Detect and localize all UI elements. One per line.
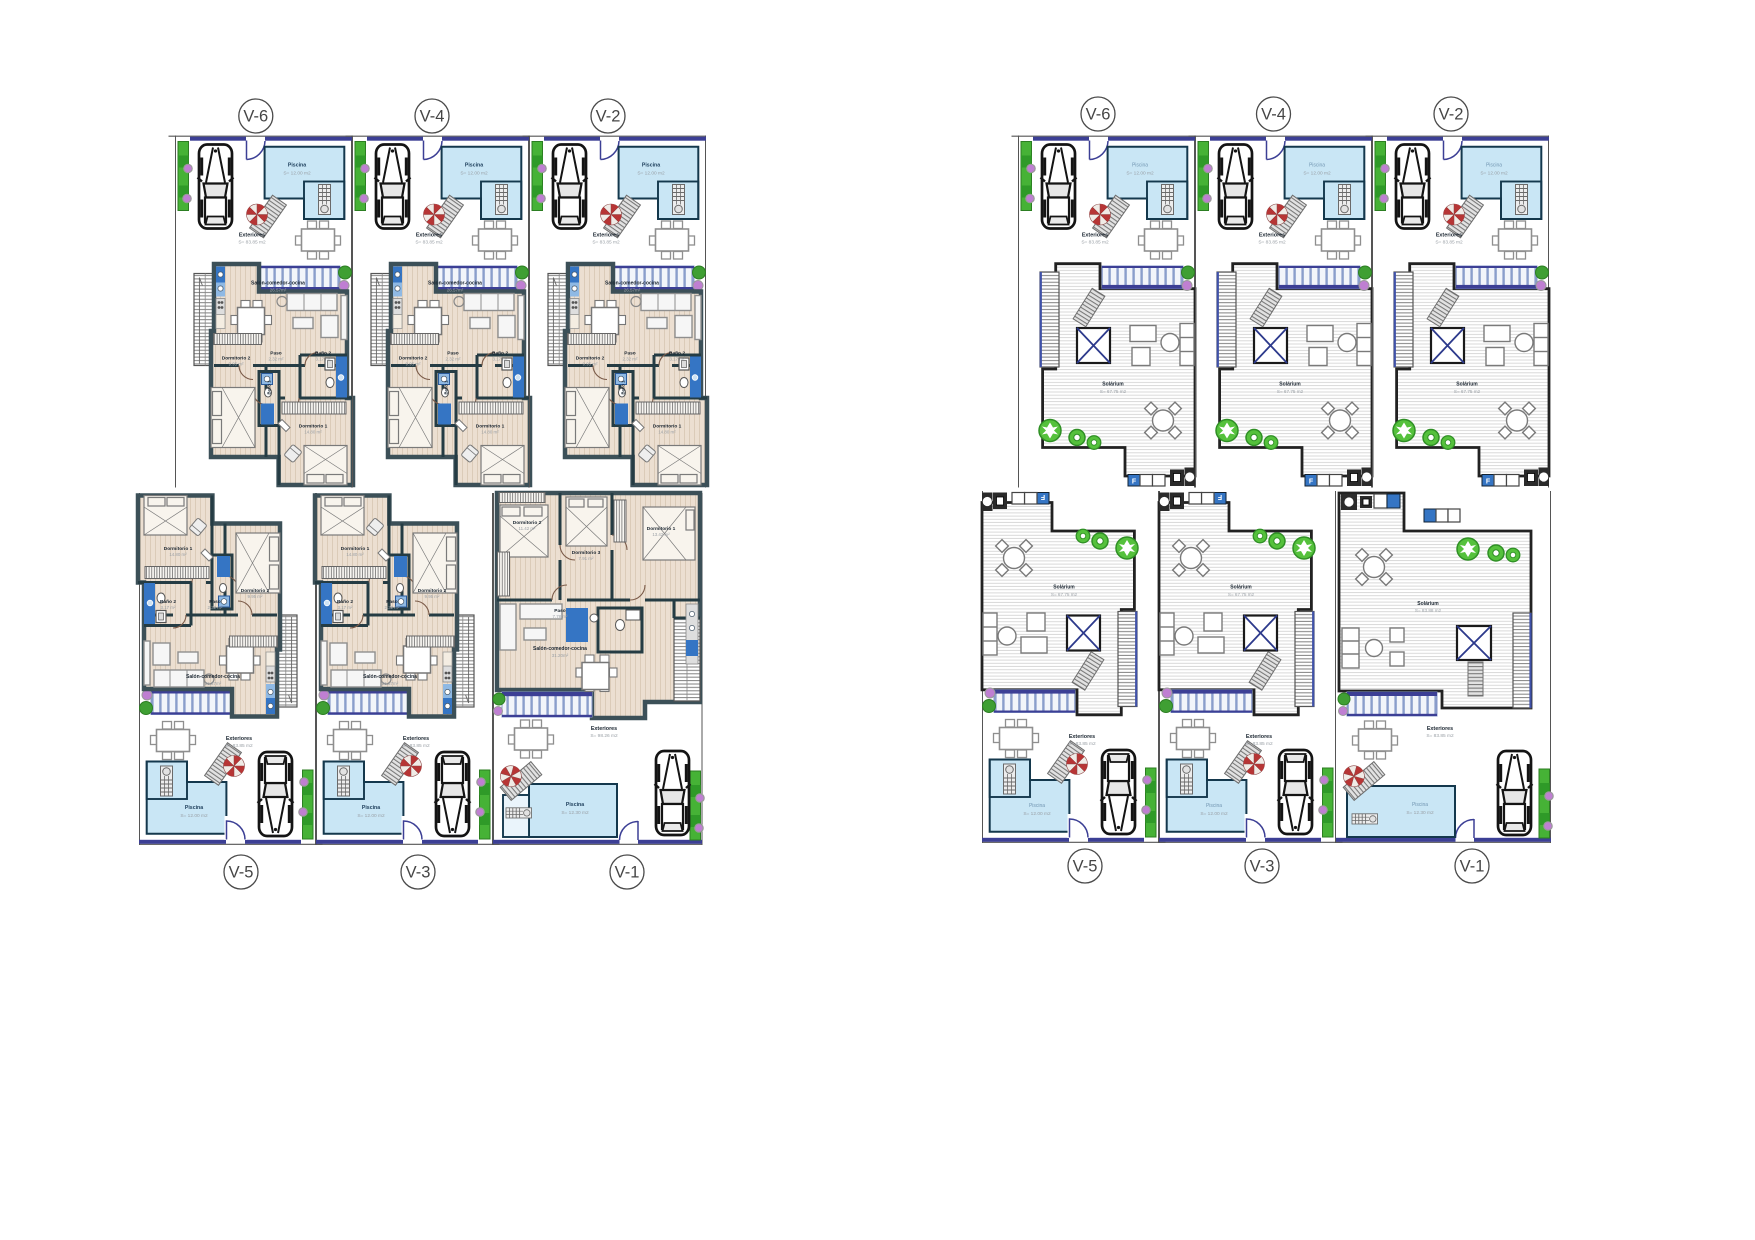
- svg-text:S= 83.85 m2: S= 83.85 m2: [1426, 733, 1454, 739]
- svg-text:2.32 m²: 2.32 m²: [385, 605, 400, 610]
- svg-text:Solárium: Solárium: [1456, 382, 1478, 388]
- svg-text:S= 12.00 m2: S= 12.00 m2: [180, 813, 208, 819]
- svg-text:S= 83.85 m2: S= 83.85 m2: [1068, 741, 1096, 747]
- svg-text:S= 67.75 m2: S= 67.75 m2: [1051, 592, 1078, 597]
- svg-text:V-6: V-6: [243, 108, 268, 126]
- svg-text:Solárium: Solárium: [1053, 585, 1075, 591]
- svg-text:V-4: V-4: [1261, 106, 1286, 124]
- svg-text:7.91 m²: 7.91 m²: [579, 556, 594, 561]
- svg-text:3.17 m²: 3.17 m²: [316, 357, 331, 362]
- svg-text:Baño 1: Baño 1: [267, 380, 272, 395]
- svg-text:14.80 m²: 14.80 m²: [169, 552, 187, 557]
- svg-text:Piscina: Piscina: [465, 163, 483, 169]
- svg-text:14.80 m²: 14.80 m²: [481, 430, 499, 435]
- svg-text:14.80 m²: 14.80 m²: [304, 430, 322, 435]
- svg-text:Exteriores: Exteriores: [1082, 233, 1108, 239]
- svg-text:F: F: [1217, 493, 1222, 500]
- svg-text:Piscina: Piscina: [185, 805, 203, 811]
- svg-text:S= 98.26 m2: S= 98.26 m2: [590, 733, 618, 739]
- svg-text:Salón-comedor-cocina: Salón-comedor-cocina: [605, 281, 659, 287]
- svg-text:S= 67.75 m2: S= 67.75 m2: [1454, 389, 1481, 394]
- svg-text:11.42 m²: 11.42 m²: [518, 526, 536, 531]
- svg-text:V-4: V-4: [420, 108, 445, 126]
- svg-text:Salón-comedor-cocina: Salón-comedor-cocina: [251, 281, 305, 287]
- svg-text:Exteriores: Exteriores: [1259, 233, 1285, 239]
- svg-text:Baño 1: Baño 1: [621, 380, 626, 395]
- svg-text:S= 83.85 m2: S= 83.85 m2: [592, 240, 620, 246]
- svg-text:3.17 m²: 3.17 m²: [493, 357, 508, 362]
- svg-text:14.80 m²: 14.80 m²: [346, 552, 364, 557]
- svg-text:Piscina: Piscina: [362, 805, 380, 811]
- svg-text:S= 83.85 m2: S= 83.85 m2: [402, 743, 430, 749]
- svg-text:26.57m²: 26.57m²: [447, 288, 464, 293]
- svg-text:Solárium: Solárium: [1417, 601, 1439, 607]
- svg-text:Exteriores: Exteriores: [1427, 726, 1453, 732]
- svg-text:Piscina: Piscina: [1412, 802, 1428, 808]
- svg-text:26.57m²: 26.57m²: [205, 681, 222, 686]
- svg-text:F: F: [1132, 479, 1137, 486]
- svg-text:V-5: V-5: [1073, 858, 1098, 876]
- svg-text:3.17 m²: 3.17 m²: [161, 605, 176, 610]
- svg-text:S= 83.85 m2: S= 83.85 m2: [415, 240, 443, 246]
- svg-text:26.57m²: 26.57m²: [270, 288, 287, 293]
- svg-text:9.95 m²: 9.95 m²: [425, 594, 440, 599]
- svg-text:Solárium: Solárium: [1279, 382, 1301, 388]
- svg-text:V-6: V-6: [1086, 106, 1111, 124]
- svg-text:Salón-comedor-cocina: Salón-comedor-cocina: [363, 674, 417, 680]
- svg-text:S= 12.00 m2: S= 12.00 m2: [637, 171, 665, 177]
- svg-text:Exteriores: Exteriores: [591, 726, 617, 732]
- svg-text:9.95 m²: 9.95 m²: [406, 362, 421, 367]
- svg-text:V-3: V-3: [1250, 858, 1275, 876]
- svg-text:Salón-comedor-cocina: Salón-comedor-cocina: [428, 281, 482, 287]
- svg-text:V-1: V-1: [615, 864, 640, 882]
- svg-text:V-5: V-5: [229, 864, 254, 882]
- svg-text:Piscina: Piscina: [1309, 163, 1325, 169]
- svg-text:Salón-comedor-cocina: Salón-comedor-cocina: [186, 674, 240, 680]
- svg-text:S= 12.00 m2: S= 12.00 m2: [1480, 171, 1508, 177]
- svg-text:S= 12.30 m2: S= 12.30 m2: [561, 810, 589, 816]
- svg-text:S= 12.00 m2: S= 12.00 m2: [283, 171, 311, 177]
- svg-text:Solárium: Solárium: [1230, 585, 1252, 591]
- svg-text:Piscina: Piscina: [566, 802, 584, 808]
- svg-text:9.95 m²: 9.95 m²: [248, 594, 263, 599]
- svg-text:V-2: V-2: [596, 108, 621, 126]
- svg-text:2.32 m²: 2.32 m²: [269, 357, 284, 362]
- svg-text:S= 67.75 m2: S= 67.75 m2: [1100, 389, 1127, 394]
- svg-text:Piscina: Piscina: [1486, 163, 1502, 169]
- svg-text:V-3: V-3: [406, 864, 431, 882]
- svg-text:9.95 m²: 9.95 m²: [583, 362, 598, 367]
- svg-text:S= 83.85 m2: S= 83.85 m2: [1081, 240, 1109, 246]
- svg-text:7.78 m²: 7.78 m²: [553, 614, 568, 619]
- svg-text:Piscina: Piscina: [1132, 163, 1148, 169]
- svg-text:31.20m²: 31.20m²: [552, 653, 569, 658]
- svg-text:S= 83.88 m2: S= 83.88 m2: [1415, 608, 1442, 613]
- svg-text:9.95 m²: 9.95 m²: [229, 362, 244, 367]
- svg-text:Exteriores: Exteriores: [1069, 734, 1095, 740]
- svg-text:S= 12.00 m2: S= 12.00 m2: [1303, 171, 1331, 177]
- svg-text:Piscina: Piscina: [642, 163, 660, 169]
- svg-text:2.32 m²: 2.32 m²: [623, 357, 638, 362]
- svg-text:S= 12.00 m2: S= 12.00 m2: [357, 813, 385, 819]
- svg-text:S= 12.30 m2: S= 12.30 m2: [1406, 810, 1434, 816]
- svg-text:Exteriores: Exteriores: [416, 233, 442, 239]
- svg-text:S= 83.85 m2: S= 83.85 m2: [1435, 240, 1463, 246]
- svg-text:F: F: [1040, 493, 1045, 500]
- svg-text:Piscina: Piscina: [1029, 803, 1045, 809]
- svg-text:26.57m²: 26.57m²: [624, 288, 641, 293]
- svg-text:Exteriores: Exteriores: [593, 233, 619, 239]
- svg-text:S= 12.00 m2: S= 12.00 m2: [1126, 171, 1154, 177]
- svg-text:Exteriores: Exteriores: [226, 736, 252, 742]
- svg-text:Piscina: Piscina: [1206, 803, 1222, 809]
- svg-text:F: F: [1309, 479, 1314, 486]
- svg-text:3.17 m²: 3.17 m²: [670, 357, 685, 362]
- svg-text:Exteriores: Exteriores: [239, 233, 265, 239]
- svg-text:Salón-comedor-cocina: Salón-comedor-cocina: [533, 646, 587, 652]
- svg-text:S= 83.85 m2: S= 83.85 m2: [225, 743, 253, 749]
- svg-text:Exteriores: Exteriores: [1246, 734, 1272, 740]
- svg-text:2.32 m²: 2.32 m²: [208, 605, 223, 610]
- svg-text:3.17 m²: 3.17 m²: [338, 605, 353, 610]
- svg-text:Exteriores: Exteriores: [1436, 233, 1462, 239]
- svg-text:S= 12.00 m2: S= 12.00 m2: [1023, 811, 1051, 817]
- svg-text:S= 12.00 m2: S= 12.00 m2: [1200, 811, 1228, 817]
- svg-text:14.80 m²: 14.80 m²: [658, 430, 676, 435]
- svg-text:26.57m²: 26.57m²: [382, 681, 399, 686]
- svg-text:S= 67.75 m2: S= 67.75 m2: [1228, 592, 1255, 597]
- svg-text:S= 67.75 m2: S= 67.75 m2: [1277, 389, 1304, 394]
- svg-text:2.32 m²: 2.32 m²: [446, 357, 461, 362]
- svg-text:Solárium: Solárium: [1102, 382, 1124, 388]
- svg-text:S= 12.00 m2: S= 12.00 m2: [460, 171, 488, 177]
- svg-text:13.42 m²: 13.42 m²: [652, 532, 670, 537]
- svg-text:F: F: [1486, 479, 1491, 486]
- svg-text:V-1: V-1: [1460, 858, 1485, 876]
- svg-text:Exteriores: Exteriores: [403, 736, 429, 742]
- svg-text:S= 83.85 m2: S= 83.85 m2: [1258, 240, 1286, 246]
- svg-text:S= 83.85 m2: S= 83.85 m2: [1245, 741, 1273, 747]
- svg-text:Piscina: Piscina: [288, 163, 306, 169]
- svg-text:V-2: V-2: [1439, 106, 1464, 124]
- svg-text:Baño 1: Baño 1: [444, 380, 449, 395]
- svg-text:S= 83.85 m2: S= 83.85 m2: [238, 240, 266, 246]
